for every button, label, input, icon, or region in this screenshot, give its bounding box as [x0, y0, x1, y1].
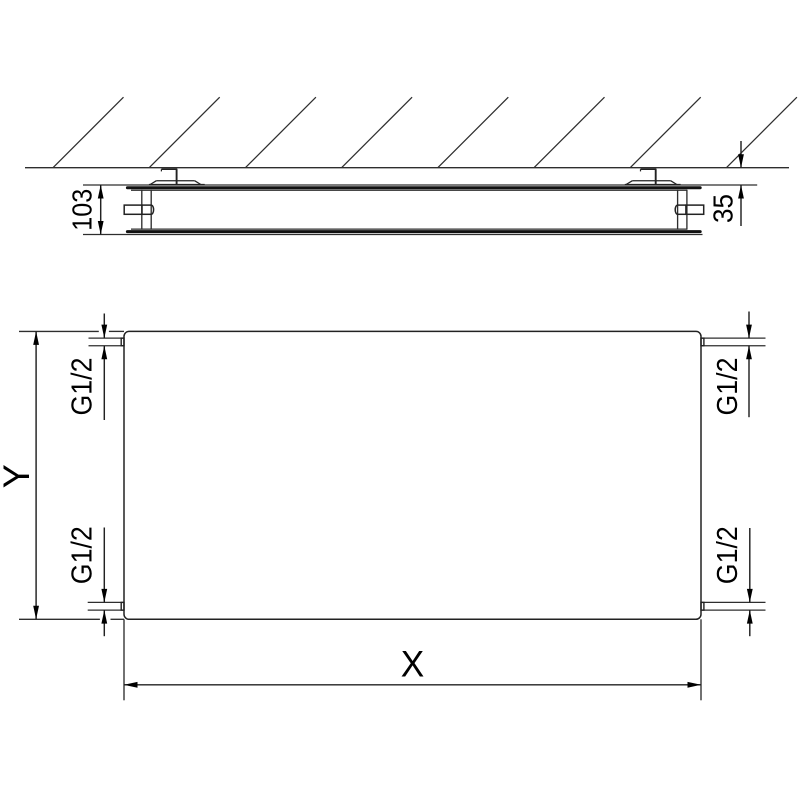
svg-text:Y: Y: [0, 464, 37, 488]
svg-text:35: 35: [708, 194, 739, 223]
svg-text:G1/2: G1/2: [67, 358, 99, 416]
svg-text:G1/2: G1/2: [712, 358, 744, 416]
svg-text:103: 103: [67, 189, 98, 231]
svg-text:X: X: [401, 644, 425, 685]
svg-text:G1/2: G1/2: [67, 526, 99, 584]
svg-text:G1/2: G1/2: [712, 526, 744, 584]
